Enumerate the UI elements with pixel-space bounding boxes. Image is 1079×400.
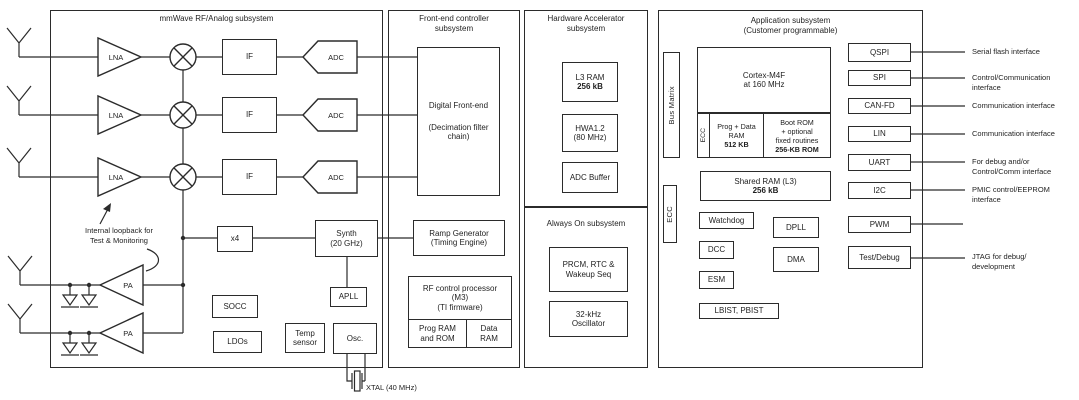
bus-matrix-block: Bus Matrix <box>663 52 680 158</box>
can-fd-block: CAN-FD <box>848 98 911 114</box>
spi-desc: Control/Communication interface <box>972 73 1079 93</box>
dcc-block: DCC <box>699 241 734 259</box>
ldos-block: LDOs <box>213 331 262 353</box>
temp-sensor-block: Tempsensor <box>285 323 325 353</box>
shared-ram-block: Shared RAM (L3)256 kB <box>700 171 831 201</box>
app-title: Application subsystem(Customer programma… <box>658 16 923 36</box>
ramp-generator-block: Ramp Generator(Timing Engine) <box>413 220 505 256</box>
lbist-pbist-block: LBIST, PBIST <box>699 303 779 319</box>
esm-block: ESM <box>699 271 734 289</box>
spi-block: SPI <box>848 70 911 86</box>
data-ram-block: DataRAM <box>467 320 511 347</box>
uart-block: UART <box>848 154 911 171</box>
socc-block: SOCC <box>212 295 258 318</box>
ecc-mem-block: ECC <box>698 114 710 157</box>
cortex-memory-row: ECC Prog + DataRAM512 KB Boot ROM+ optio… <box>697 113 831 158</box>
ecc-left-block: ECC <box>663 185 677 243</box>
apll-block: APLL <box>330 287 367 307</box>
rf-processor-title-area: RF control processor(M3)(TI firmware) <box>409 277 511 319</box>
if-block-3: IF <box>222 159 277 195</box>
alwayson-title: Always On subsystem <box>524 219 648 229</box>
osc-block: Osc. <box>333 323 377 354</box>
hwa12-block: HWA1.2(80 MHz) <box>562 114 618 152</box>
lin-desc: Communication interface <box>972 129 1079 139</box>
cortex-m4f-block: Cortex-M4Fat 160 MHz <box>697 47 831 113</box>
hwa-title: Hardware Acceleratorsubsystem <box>524 14 648 34</box>
qspi-block: QSPI <box>848 43 911 62</box>
watchdog-block: Watchdog <box>699 212 754 229</box>
osc-32khz-block: 32-kHzOscillator <box>549 301 628 337</box>
qspi-desc: Serial flash interface <box>972 47 1079 57</box>
test-debug-desc: JTAG for debug/ development <box>972 252 1079 272</box>
x4-multiplier-block: x4 <box>217 226 253 252</box>
pwm-block: PWM <box>848 216 911 233</box>
adc-buffer-block: ADC Buffer <box>562 162 618 193</box>
if-block-2: IF <box>222 97 277 133</box>
soc-block-diagram: LNA LNA LNA PA PA ADC ADC ADC mmWave RF/… <box>0 0 1079 400</box>
mmwave-title: mmWave RF/Analog subsystem <box>50 14 383 24</box>
lin-block: LIN <box>848 126 911 142</box>
uart-desc: For debug and/or Control/Comm interface <box>972 157 1079 177</box>
prog-data-ram-block: Prog + DataRAM512 KB <box>710 114 764 157</box>
test-debug-block: Test/Debug <box>848 246 911 269</box>
xtal-label: XTAL (40 MHz) <box>366 383 417 393</box>
loopback-note: Internal loopback forTest & Monitoring <box>72 226 166 246</box>
digital-frontend-block: Digital Front-end (Decimation filterchai… <box>417 47 500 196</box>
rf-control-processor-block: RF control processor(M3)(TI firmware) Pr… <box>408 276 512 348</box>
if-block-1: IF <box>222 39 277 75</box>
dpll-block: DPLL <box>773 217 819 238</box>
l3-ram-block: L3 RAM256 kB <box>562 62 618 102</box>
i2c-block: I2C <box>848 182 911 199</box>
frontend-title: Front-end controllersubsystem <box>388 14 520 34</box>
prog-ram-rom-block: Prog RAMand ROM <box>409 320 467 347</box>
boot-rom-block: Boot ROM+ optionalfixed routines256-KB R… <box>764 114 830 157</box>
synth-block: Synth(20 GHz) <box>315 220 378 257</box>
dma-block: DMA <box>773 247 819 272</box>
can-fd-desc: Communication interface <box>972 101 1079 111</box>
prcm-rtc-block: PRCM, RTC &Wakeup Seq <box>549 247 628 292</box>
i2c-desc: PMIC control/EEPROM interface <box>972 185 1079 205</box>
